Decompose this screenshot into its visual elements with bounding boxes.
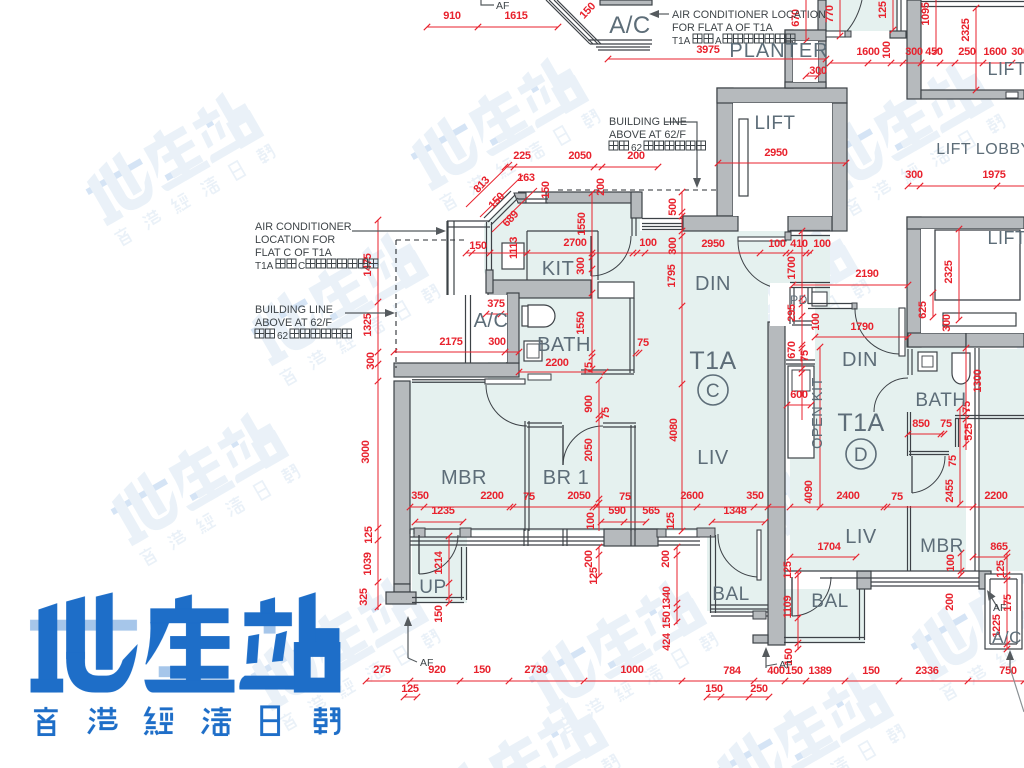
svg-text:670: 670: [786, 341, 798, 359]
svg-text:AF: AF: [496, 0, 509, 12]
svg-text:1550: 1550: [575, 311, 587, 334]
svg-text:1000: 1000: [620, 664, 643, 676]
svg-text:150: 150: [469, 240, 487, 252]
svg-text:FOR FLAT A OF T1A: FOR FLAT A OF T1A: [672, 22, 774, 34]
svg-text:1113: 1113: [508, 237, 520, 259]
svg-text:100: 100: [639, 237, 657, 249]
svg-text:125: 125: [877, 1, 889, 19]
svg-text:2200: 2200: [545, 357, 568, 369]
svg-text:2050: 2050: [567, 490, 590, 502]
svg-text:300: 300: [1011, 46, 1024, 58]
svg-text:410: 410: [790, 238, 808, 250]
svg-text:225: 225: [513, 150, 531, 162]
svg-text:600: 600: [790, 389, 808, 401]
svg-text:1039: 1039: [362, 552, 374, 575]
svg-text:PD: PD: [790, 293, 808, 307]
svg-text:75: 75: [523, 491, 535, 503]
svg-text:DIN: DIN: [842, 349, 878, 371]
svg-text:900: 900: [583, 395, 595, 413]
svg-text:1550: 1550: [576, 212, 588, 235]
svg-text:LIV: LIV: [697, 447, 729, 469]
svg-text:75: 75: [583, 362, 595, 374]
svg-text:125: 125: [782, 561, 794, 579]
svg-text:75: 75: [891, 491, 903, 503]
svg-text:LIV: LIV: [845, 526, 877, 548]
svg-text:325: 325: [358, 588, 370, 606]
svg-text:75: 75: [799, 350, 811, 362]
svg-text:75: 75: [600, 407, 612, 419]
svg-text:100: 100: [585, 512, 597, 530]
svg-text:1348: 1348: [723, 505, 746, 517]
svg-text:1235: 1235: [431, 505, 454, 517]
svg-text:2200: 2200: [480, 490, 503, 502]
svg-text:1975: 1975: [982, 169, 1005, 181]
svg-text:163: 163: [517, 172, 535, 184]
svg-text:300: 300: [365, 352, 377, 370]
svg-text:250: 250: [958, 46, 976, 58]
svg-text:BATH: BATH: [537, 334, 591, 356]
svg-text:LIFT LOBBY: LIFT LOBBY: [936, 141, 1024, 158]
svg-text:2600: 2600: [680, 490, 703, 502]
svg-text:200: 200: [583, 550, 595, 568]
svg-text:DIN: DIN: [695, 273, 731, 295]
svg-text:424: 424: [661, 632, 673, 651]
svg-text:125: 125: [665, 512, 677, 530]
svg-text:FLAT C OF T1A: FLAT C OF T1A: [255, 247, 333, 259]
svg-text:LIFT: LIFT: [987, 228, 1024, 248]
svg-text:BAL: BAL: [811, 591, 848, 612]
svg-text:2730: 2730: [524, 664, 547, 676]
svg-text:565: 565: [642, 505, 660, 517]
svg-text:1700: 1700: [786, 256, 798, 279]
svg-text:T1A: T1A: [689, 347, 736, 375]
svg-text:1795: 1795: [666, 264, 678, 287]
svg-text:784: 784: [723, 665, 742, 677]
svg-text:150: 150: [705, 683, 723, 695]
svg-text:1600: 1600: [983, 46, 1006, 58]
svg-text:300: 300: [575, 257, 587, 275]
svg-text:125: 125: [363, 526, 375, 544]
svg-text:62: 62: [631, 143, 643, 154]
svg-text:T1A: T1A: [837, 409, 884, 437]
svg-text:750: 750: [999, 665, 1017, 677]
svg-text:100: 100: [881, 41, 893, 59]
svg-text:200: 200: [660, 550, 672, 568]
svg-text:100: 100: [768, 238, 786, 250]
svg-text:2050: 2050: [568, 150, 591, 162]
svg-text:1214: 1214: [433, 550, 445, 574]
svg-text:200: 200: [595, 178, 607, 196]
svg-text:1300: 1300: [972, 369, 984, 392]
svg-text:150: 150: [661, 611, 673, 629]
svg-text:250: 250: [750, 683, 768, 695]
svg-text:865: 865: [990, 541, 1008, 553]
svg-text:4090: 4090: [803, 480, 815, 503]
svg-text:150: 150: [473, 664, 491, 676]
svg-text:2455: 2455: [944, 479, 956, 502]
svg-text:1790: 1790: [850, 321, 873, 333]
svg-text:1389: 1389: [808, 665, 831, 677]
svg-text:BR 1: BR 1: [543, 467, 589, 489]
svg-text:1325: 1325: [362, 313, 374, 336]
svg-text:4080: 4080: [668, 418, 680, 441]
svg-text:1095: 1095: [920, 2, 932, 25]
svg-text:AIR CONDITIONER: AIR CONDITIONER: [255, 221, 352, 233]
svg-text:300: 300: [809, 65, 827, 77]
svg-text:2700: 2700: [563, 237, 586, 249]
svg-text:A/C: A/C: [992, 628, 1022, 647]
svg-text:2336: 2336: [915, 665, 938, 677]
svg-text:AF: AF: [420, 657, 433, 669]
svg-text:75: 75: [947, 455, 959, 467]
svg-text:LIFT: LIFT: [987, 59, 1024, 79]
svg-text:2325: 2325: [960, 18, 972, 41]
svg-text:1704: 1704: [817, 541, 841, 553]
svg-text:ABOVE AT 62/F: ABOVE AT 62/F: [609, 129, 686, 141]
svg-text:BATH: BATH: [915, 390, 966, 411]
svg-text:75: 75: [637, 337, 649, 349]
svg-text:2325: 2325: [943, 260, 955, 283]
svg-text:150: 150: [433, 605, 445, 623]
svg-text:2950: 2950: [701, 238, 724, 250]
svg-text:AIR CONDITIONER LOCATION: AIR CONDITIONER LOCATION: [672, 9, 826, 21]
svg-text:LIFT: LIFT: [754, 113, 795, 134]
svg-text:BUILDING LINE: BUILDING LINE: [609, 116, 687, 128]
svg-text:T1A: T1A: [255, 261, 274, 272]
svg-text:125: 125: [401, 683, 419, 695]
svg-text:T1A: T1A: [672, 36, 691, 47]
svg-text:2200: 2200: [984, 490, 1007, 502]
svg-text:300: 300: [667, 237, 679, 255]
svg-text:PLANTER: PLANTER: [729, 40, 828, 62]
svg-text:300: 300: [905, 169, 923, 181]
svg-text:75: 75: [619, 491, 631, 503]
svg-text:2175: 2175: [439, 336, 462, 348]
svg-text:300: 300: [488, 336, 506, 348]
svg-text:300: 300: [941, 314, 953, 332]
svg-text:300: 300: [905, 46, 923, 58]
svg-text:A/C: A/C: [609, 12, 651, 39]
svg-text:2050: 2050: [583, 438, 595, 461]
svg-text:1109: 1109: [782, 595, 794, 618]
svg-text:KIT: KIT: [542, 258, 575, 280]
svg-text:MBR: MBR: [920, 536, 964, 557]
svg-text:625: 625: [917, 301, 929, 319]
svg-text:ABOVE AT 62/F: ABOVE AT 62/F: [255, 317, 332, 329]
svg-text:375: 375: [487, 298, 505, 310]
svg-text:BAL: BAL: [712, 584, 749, 605]
svg-text:500: 500: [667, 198, 679, 216]
svg-text:OPEN KIT: OPEN KIT: [810, 377, 826, 449]
svg-text:125: 125: [588, 567, 600, 585]
svg-text:2950: 2950: [764, 147, 787, 159]
svg-text:A/C: A/C: [474, 310, 509, 332]
svg-text:350: 350: [411, 490, 429, 502]
svg-text:D: D: [854, 445, 868, 466]
svg-text:450: 450: [925, 46, 943, 58]
svg-text:A: A: [715, 36, 722, 47]
svg-text:MBR: MBR: [441, 467, 487, 489]
svg-text:75: 75: [940, 418, 952, 430]
svg-text:AF: AF: [779, 659, 792, 671]
svg-text:AF: AF: [993, 602, 1006, 614]
svg-text:C: C: [706, 381, 720, 402]
svg-text:350: 350: [746, 490, 764, 502]
svg-text:3000: 3000: [360, 440, 372, 463]
svg-text:590: 590: [608, 505, 626, 517]
svg-text:2400: 2400: [836, 490, 859, 502]
svg-text:1600: 1600: [856, 46, 879, 58]
svg-text:UP: UP: [419, 577, 446, 598]
svg-text:100: 100: [810, 313, 822, 331]
svg-text:LOCATION FOR: LOCATION FOR: [255, 234, 335, 246]
svg-text:125: 125: [995, 560, 1007, 578]
svg-text:2190: 2190: [855, 268, 878, 280]
svg-text:850: 850: [912, 418, 930, 430]
svg-text:150: 150: [862, 665, 880, 677]
svg-text:150: 150: [540, 181, 552, 199]
svg-text:BUILDING LINE: BUILDING LINE: [255, 304, 333, 316]
svg-text:525: 525: [963, 423, 975, 441]
svg-text:200: 200: [944, 593, 956, 611]
svg-text:C: C: [298, 261, 305, 272]
svg-text:62: 62: [277, 331, 289, 342]
svg-text:910: 910: [443, 10, 461, 22]
svg-text:275: 275: [373, 664, 391, 676]
svg-text:1340: 1340: [661, 586, 673, 609]
svg-text:100: 100: [813, 238, 831, 250]
